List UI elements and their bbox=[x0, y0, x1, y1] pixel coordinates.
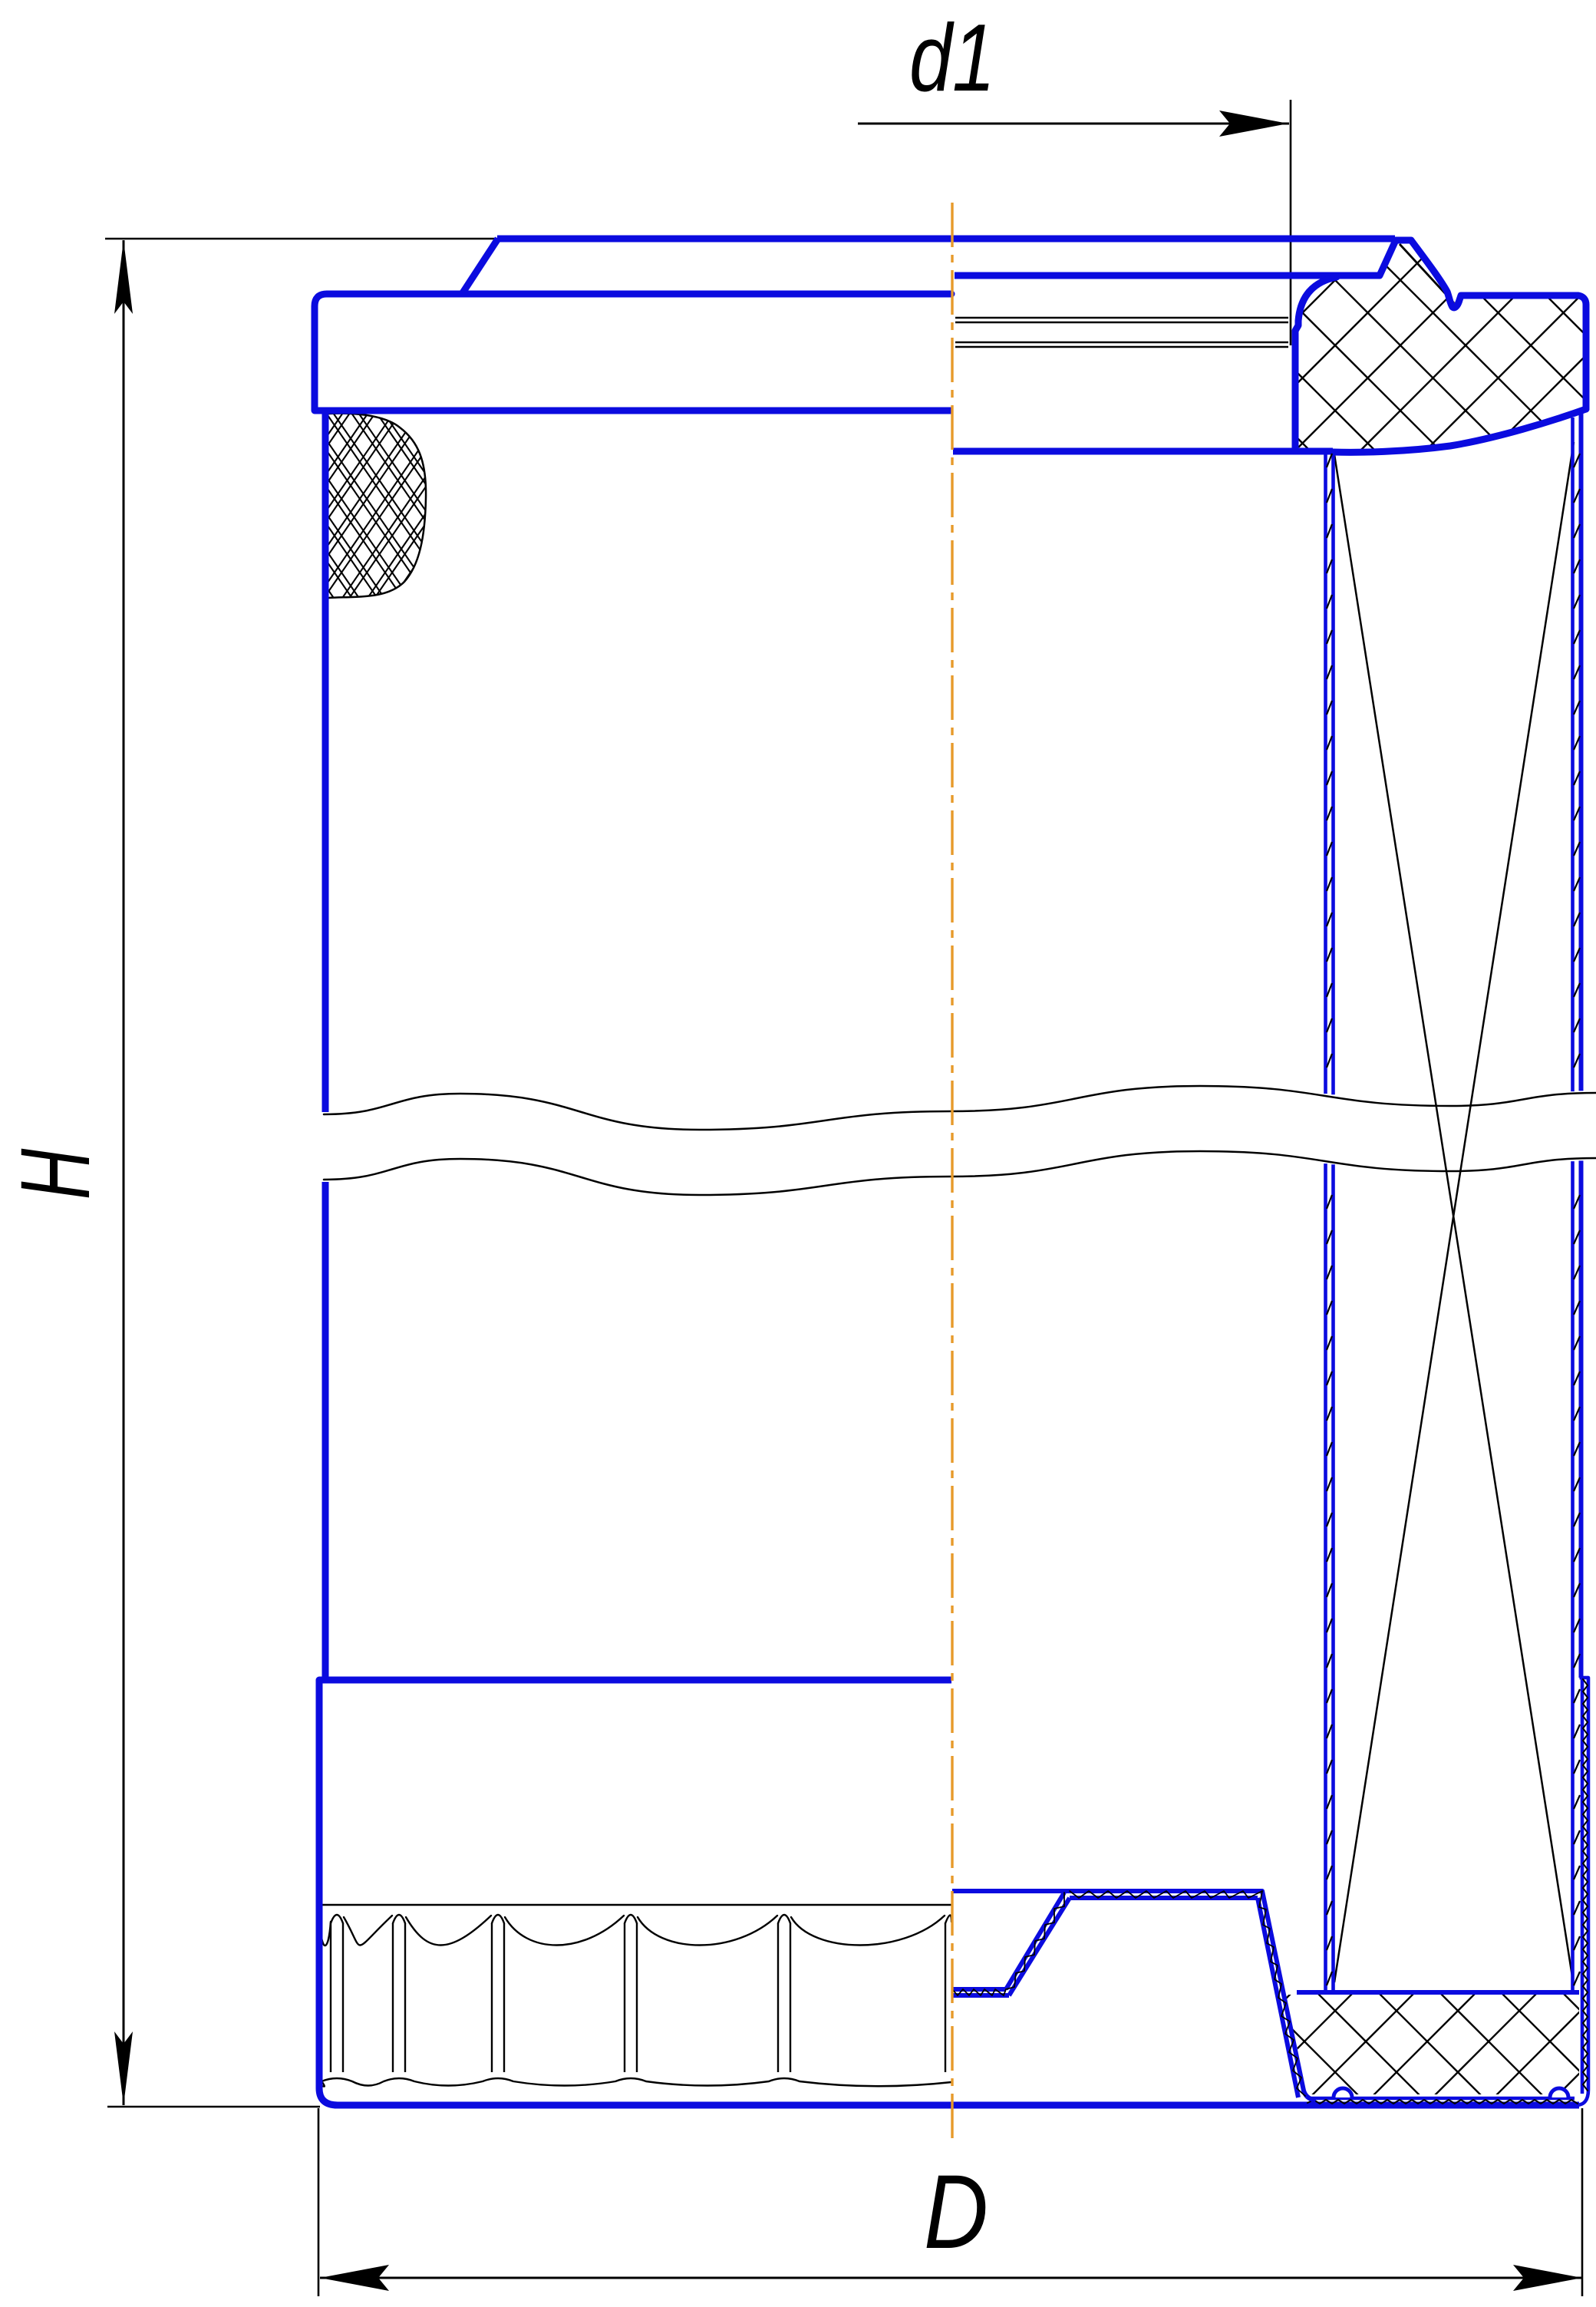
svg-text:d1: d1 bbox=[909, 5, 995, 111]
svg-text:D: D bbox=[924, 2154, 988, 2271]
svg-text:H: H bbox=[0, 1148, 110, 1200]
